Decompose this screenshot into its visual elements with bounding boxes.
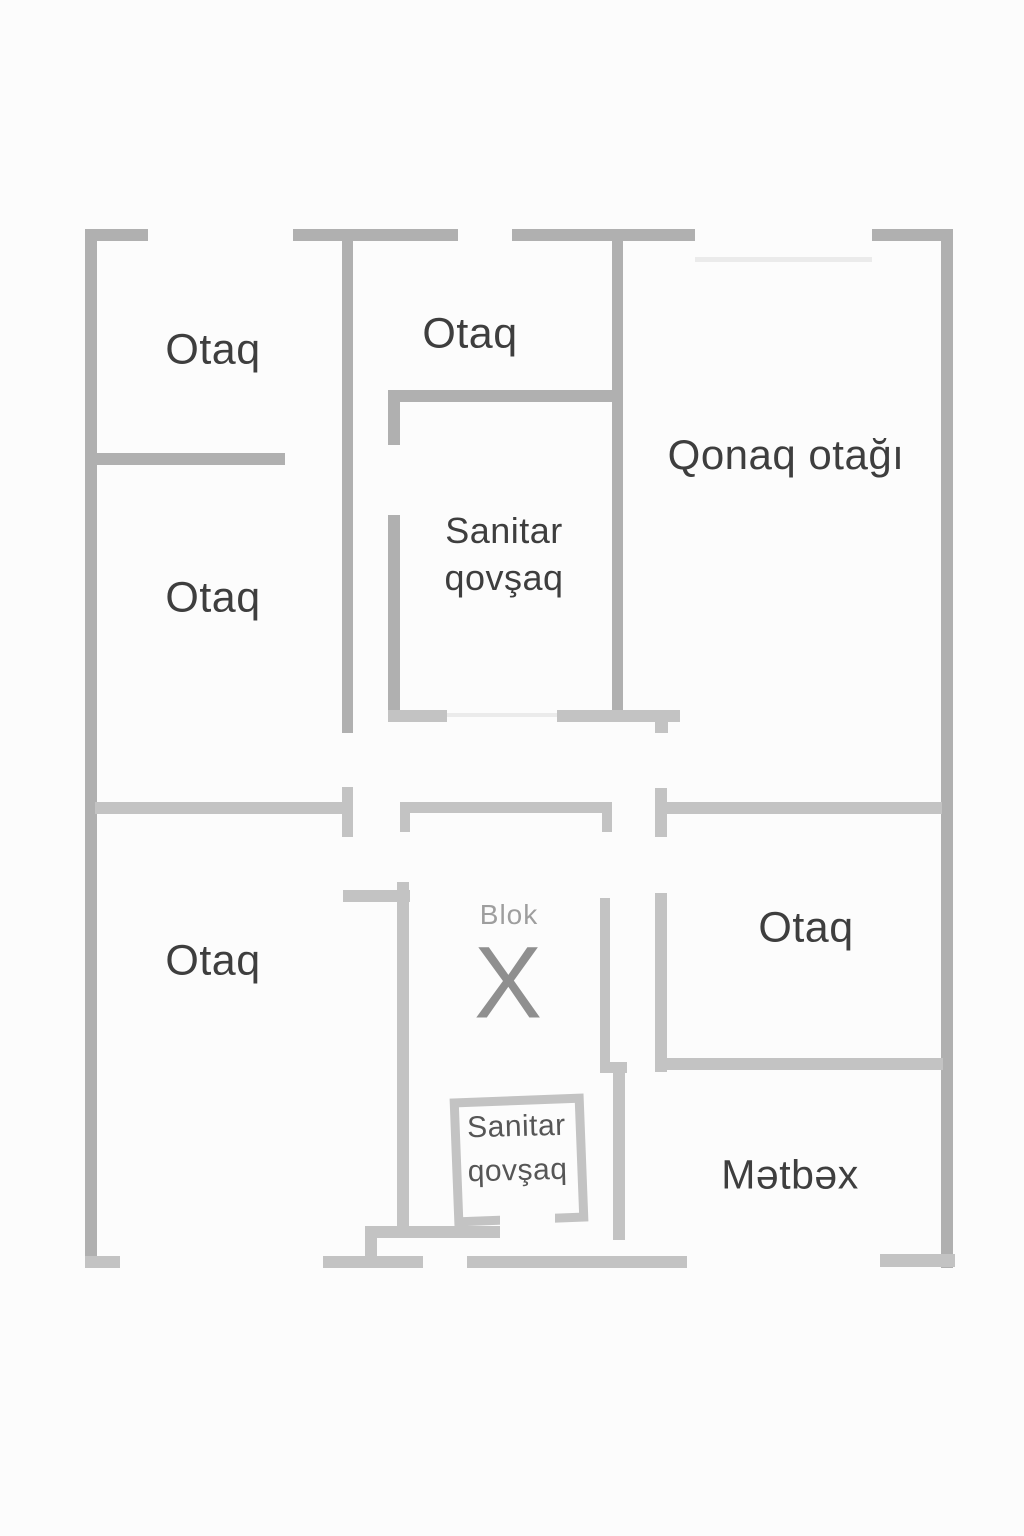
wall-sanitar-lower-connector — [365, 1226, 377, 1268]
wall-bottom-4 — [880, 1254, 955, 1267]
wall-tick-below-sanitar — [655, 722, 668, 733]
wall-bottom-1 — [85, 1256, 120, 1268]
wall-corridor-middle — [400, 802, 612, 813]
wall-blok-right-upper — [600, 898, 610, 1062]
wall-divider-left-rooms — [93, 453, 285, 465]
wall-otaq-right-bottom — [657, 1058, 943, 1070]
room-label-sanitar-lower: Sanitar qovşaq — [466, 1104, 568, 1195]
wall-corridor-right — [667, 802, 942, 814]
room-label-otaq-middle-left: Otaq — [165, 574, 260, 623]
door-gap-sanitar-lower — [500, 1204, 555, 1238]
wall-top-2 — [293, 229, 458, 241]
room-label-metbex: Mətbəx — [721, 1152, 858, 1199]
room-label-qonaq-otagi: Qonaq otağı — [668, 431, 905, 479]
sanitar-lower-line1: Sanitar — [466, 1104, 567, 1151]
wall-vertical-left-block — [342, 229, 353, 733]
wall-sanitar-upper-left-a — [388, 402, 400, 445]
wall-corridor-middle-end-left — [400, 813, 410, 832]
sanitar-upper-line1: Sanitar — [444, 507, 563, 554]
room-label-otaq-bottom-left: Otaq — [165, 937, 260, 986]
wall-sanitar-upper-bottom-a — [388, 710, 447, 722]
room-label-otaq-right: Otaq — [758, 904, 853, 953]
wall-sanitar-lower-bottom-left — [365, 1226, 500, 1238]
wall-top-4 — [872, 229, 953, 241]
sanitar-upper-line2: qovşaq — [444, 554, 563, 601]
room-label-otaq-top-middle: Otaq — [422, 310, 517, 359]
door-threshold-sanitar-upper — [447, 713, 557, 717]
wall-corridor-left — [95, 802, 342, 814]
room-label-sanitar-upper: Sanitar qovşaq — [444, 507, 563, 601]
wall-otaq-right-left — [655, 893, 667, 1072]
wall-blok-right-lower — [613, 1073, 625, 1240]
wall-sanitar-upper-left-b — [388, 515, 400, 722]
wall-top-3 — [512, 229, 695, 241]
blok-x-symbol: X — [474, 925, 542, 1042]
wall-outer-right — [941, 229, 953, 1268]
wall-bottom-3 — [467, 1256, 687, 1268]
room-label-otaq-top-left: Otaq — [165, 326, 260, 375]
wall-sanitar-upper-bottom-b — [557, 710, 680, 722]
wall-corridor-tick-right — [655, 788, 667, 837]
wall-blok-left — [397, 882, 409, 1227]
wall-vertical-qonaq — [612, 229, 623, 715]
wall-blok-right-jog — [600, 1062, 627, 1073]
wall-sanitar-upper-top — [388, 390, 623, 402]
floor-plan: Otaq Otaq Qonaq otağı Otaq Sanitar qovşa… — [0, 0, 1024, 1536]
wall-outer-left — [85, 229, 97, 1268]
wall-top-1 — [85, 229, 148, 241]
wall-corridor-middle-end-right — [602, 813, 612, 832]
wall-corridor-tick-left — [342, 787, 353, 837]
sanitar-lower-line2: qovşaq — [467, 1148, 568, 1195]
window-line-qonaq — [695, 257, 872, 262]
